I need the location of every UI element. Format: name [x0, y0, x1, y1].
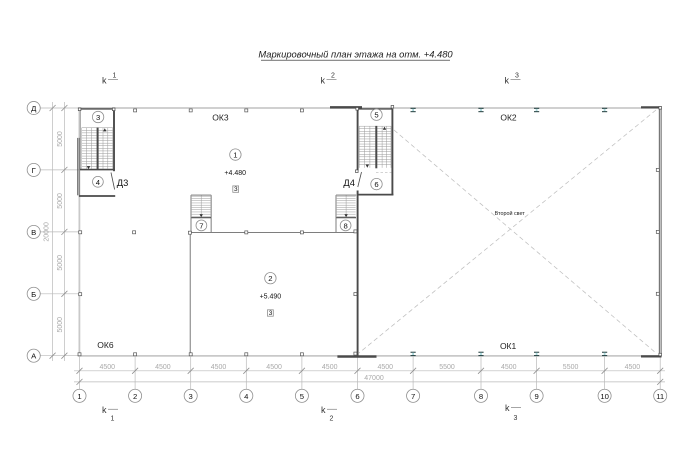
svg-text:8: 8 [479, 392, 483, 401]
svg-text:2: 2 [133, 392, 137, 401]
svg-text:4: 4 [244, 392, 249, 401]
svg-text:Д4: Д4 [343, 177, 355, 188]
svg-text:3: 3 [269, 310, 273, 317]
svg-text:Второй свет: Второй свет [495, 210, 526, 217]
svg-text:В: В [31, 228, 36, 237]
svg-text:4500: 4500 [501, 364, 517, 371]
svg-text:А: А [31, 352, 37, 361]
svg-text:1: 1 [233, 151, 237, 160]
svg-text:Маркировочный план этажа на от: Маркировочный план этажа на отм. +4.480 [258, 49, 453, 60]
svg-text:+5.490: +5.490 [260, 293, 282, 300]
svg-text:7: 7 [411, 392, 415, 401]
svg-text:4500: 4500 [155, 364, 171, 371]
svg-text:6: 6 [355, 392, 359, 401]
svg-text:3: 3 [96, 113, 100, 122]
svg-text:5000: 5000 [57, 255, 64, 271]
svg-text:5000: 5000 [57, 193, 64, 209]
svg-text:ОК1: ОК1 [500, 341, 517, 351]
svg-text:4500: 4500 [211, 364, 227, 371]
svg-text:k: k [321, 76, 326, 86]
svg-text:4500: 4500 [378, 364, 394, 371]
svg-text:5500: 5500 [439, 364, 455, 371]
svg-text:k: k [102, 76, 107, 86]
svg-text:3: 3 [514, 415, 518, 422]
svg-text:20000: 20000 [44, 222, 51, 242]
svg-text:k: k [321, 405, 326, 415]
svg-text:ОК6: ОК6 [97, 340, 114, 350]
svg-text:5: 5 [374, 111, 378, 120]
svg-text:47000: 47000 [364, 375, 384, 382]
svg-text:+4.480: +4.480 [224, 170, 246, 177]
svg-text:5000: 5000 [57, 131, 64, 147]
svg-text:Д: Д [31, 104, 37, 113]
svg-text:1: 1 [111, 416, 115, 423]
svg-text:4500: 4500 [266, 364, 282, 371]
svg-text:4500: 4500 [322, 364, 338, 371]
svg-text:5000: 5000 [57, 317, 64, 333]
svg-text:4500: 4500 [625, 364, 641, 371]
svg-text:ОК3: ОК3 [212, 113, 229, 123]
svg-text:3: 3 [515, 73, 519, 80]
svg-text:10: 10 [600, 392, 609, 401]
svg-text:5500: 5500 [563, 364, 579, 371]
svg-text:2: 2 [268, 274, 272, 283]
svg-text:8: 8 [343, 221, 347, 230]
svg-text:4: 4 [96, 178, 101, 187]
svg-text:3: 3 [189, 392, 193, 401]
svg-text:11: 11 [656, 392, 664, 401]
svg-text:7: 7 [199, 221, 203, 230]
svg-text:k: k [102, 405, 107, 415]
svg-text:2: 2 [331, 73, 335, 80]
svg-text:5: 5 [300, 392, 304, 401]
svg-text:2: 2 [330, 416, 334, 423]
svg-text:9: 9 [534, 392, 538, 401]
svg-text:1: 1 [77, 392, 81, 401]
svg-text:k: k [505, 76, 510, 86]
svg-text:4500: 4500 [100, 364, 116, 371]
svg-text:Д3: Д3 [117, 177, 129, 188]
svg-text:3: 3 [234, 186, 238, 193]
svg-text:1: 1 [113, 73, 117, 80]
svg-text:k: k [505, 403, 510, 413]
svg-text:ОК2: ОК2 [500, 113, 517, 123]
svg-text:6: 6 [374, 180, 378, 189]
svg-text:Б: Б [31, 290, 36, 299]
